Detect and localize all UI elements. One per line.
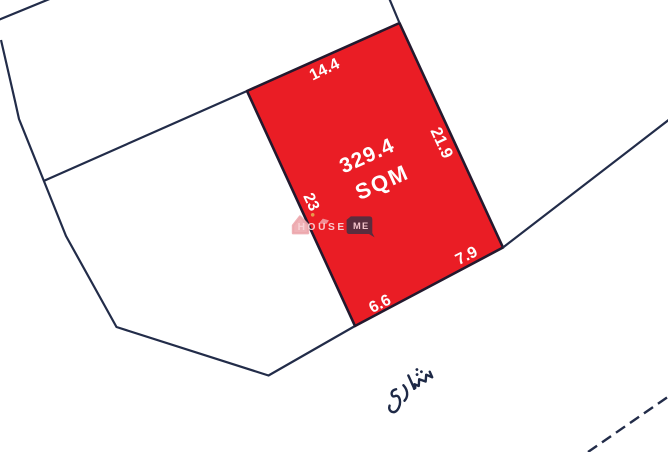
svg-text:ME: ME: [353, 221, 369, 231]
svg-text:HOUSE: HOUSE: [298, 222, 347, 233]
